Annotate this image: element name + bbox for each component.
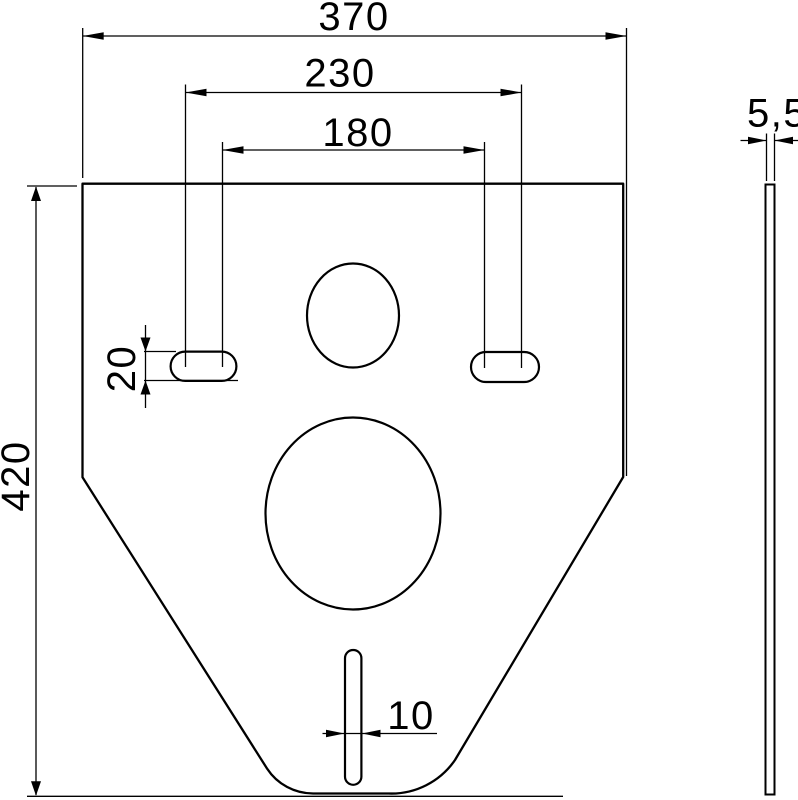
svg-text:5,5: 5,5: [747, 92, 798, 136]
svg-text:420: 420: [0, 440, 38, 511]
svg-text:230: 230: [304, 52, 375, 96]
svg-text:370: 370: [318, 0, 389, 39]
svg-text:10: 10: [387, 694, 435, 738]
svg-text:180: 180: [322, 111, 393, 155]
svg-text:20: 20: [100, 345, 144, 393]
